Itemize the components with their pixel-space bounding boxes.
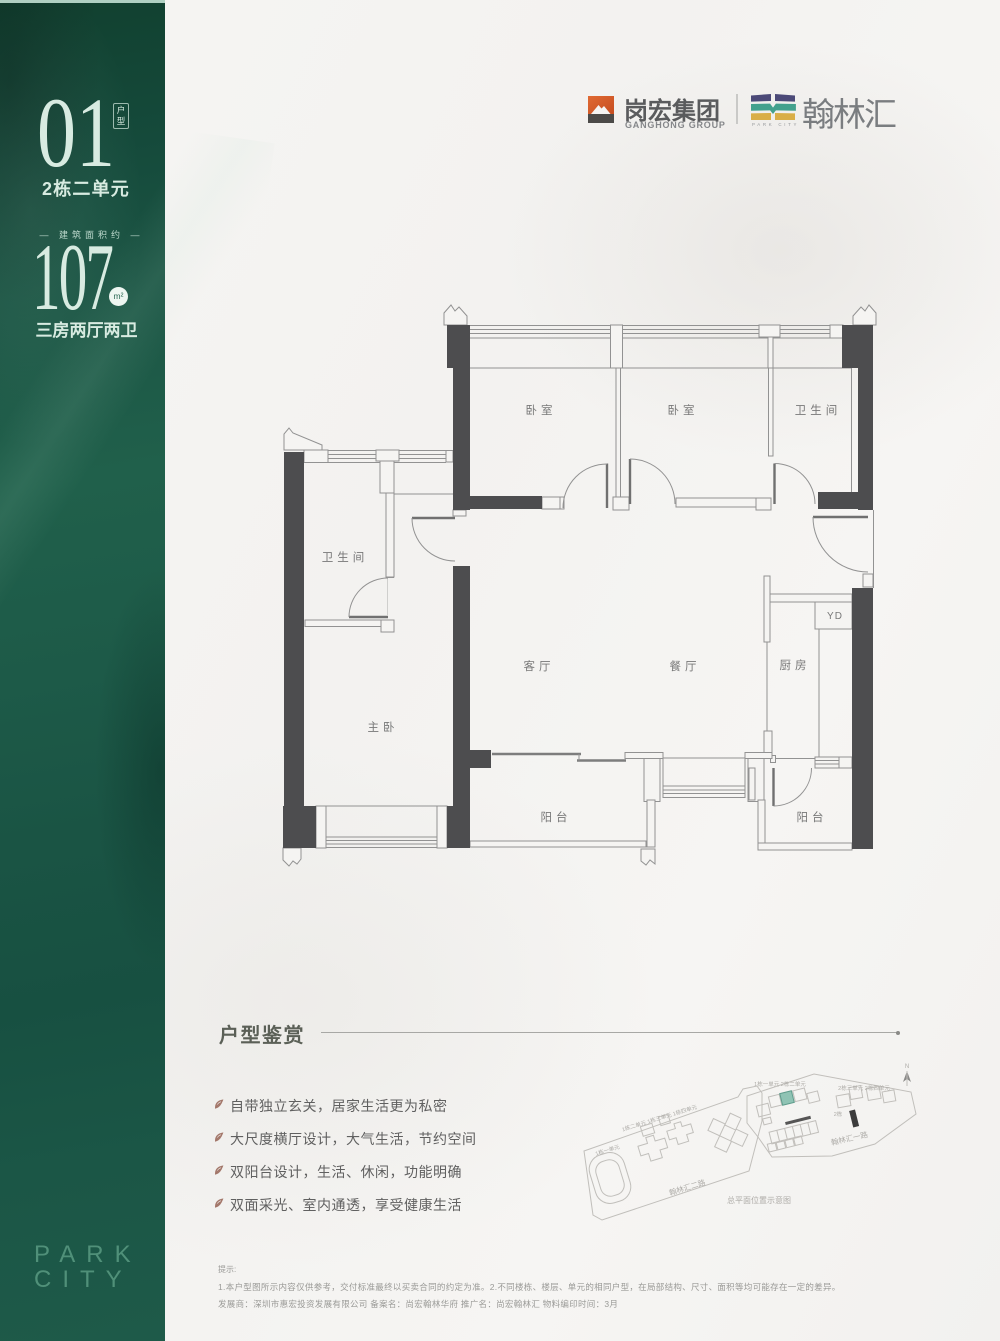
svg-text:翰林汇二路: 翰林汇二路 (668, 1177, 707, 1198)
svg-text:阳台: 阳台 (541, 810, 572, 824)
svg-text:客厅: 客厅 (524, 659, 555, 673)
svg-text:1栋一单元 2栋二单元: 1栋一单元 2栋二单元 (754, 1080, 806, 1088)
svg-text:总平面位置示意图: 总平面位置示意图 (727, 1195, 791, 1205)
svg-text:1栋一单元: 1栋一单元 (594, 1142, 621, 1157)
svg-text:卧室: 卧室 (526, 403, 557, 417)
svg-text:厨房: 厨房 (780, 659, 811, 672)
svg-text:YD: YD (827, 611, 843, 622)
svg-text:卧室: 卧室 (668, 403, 699, 417)
svg-text:翰林汇一路: 翰林汇一路 (830, 1129, 869, 1147)
svg-text:餐厅: 餐厅 (670, 659, 701, 673)
svg-text:2栋: 2栋 (834, 1110, 843, 1118)
svg-text:N: N (905, 1064, 909, 1070)
svg-text:卫生间: 卫生间 (795, 403, 842, 417)
svg-text:1栋二单元 1栋三单元 1栋四单元: 1栋二单元 1栋三单元 1栋四单元 (621, 1103, 699, 1134)
svg-text:2栋三单元 2栋四单元: 2栋三单元 2栋四单元 (838, 1084, 890, 1092)
svg-text:主卧: 主卧 (368, 721, 399, 734)
svg-text:阳台: 阳台 (797, 810, 828, 824)
svg-text:卫生间: 卫生间 (322, 550, 369, 564)
